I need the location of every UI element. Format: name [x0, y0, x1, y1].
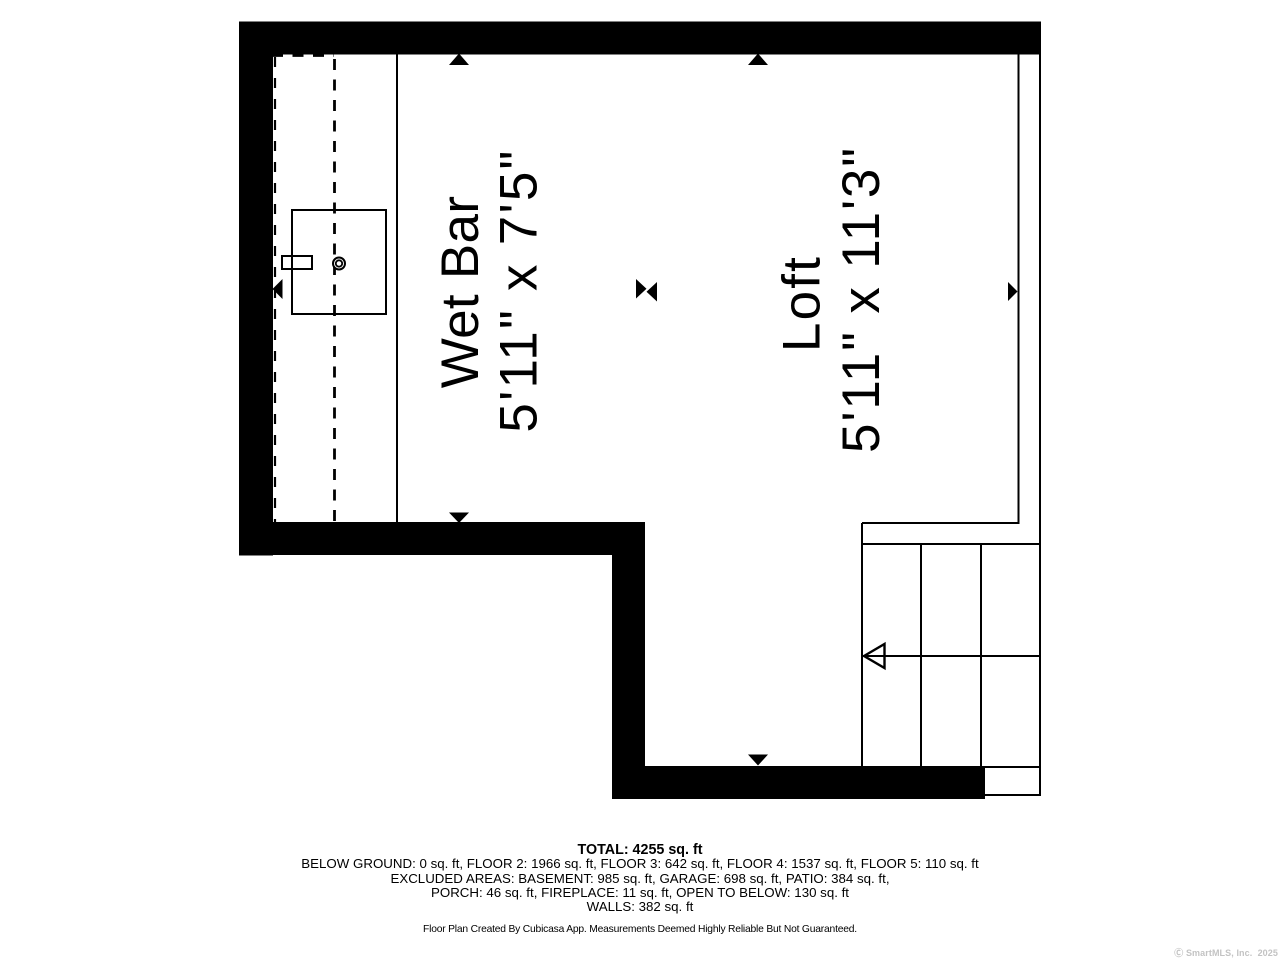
svg-text:Loft: Loft	[773, 255, 832, 352]
svg-text:Wet Bar: Wet Bar	[431, 196, 490, 389]
svg-text:5'11" x 11'3": 5'11" x 11'3"	[832, 146, 891, 453]
svg-text:5'11" x 7'5": 5'11" x 7'5"	[490, 148, 549, 432]
